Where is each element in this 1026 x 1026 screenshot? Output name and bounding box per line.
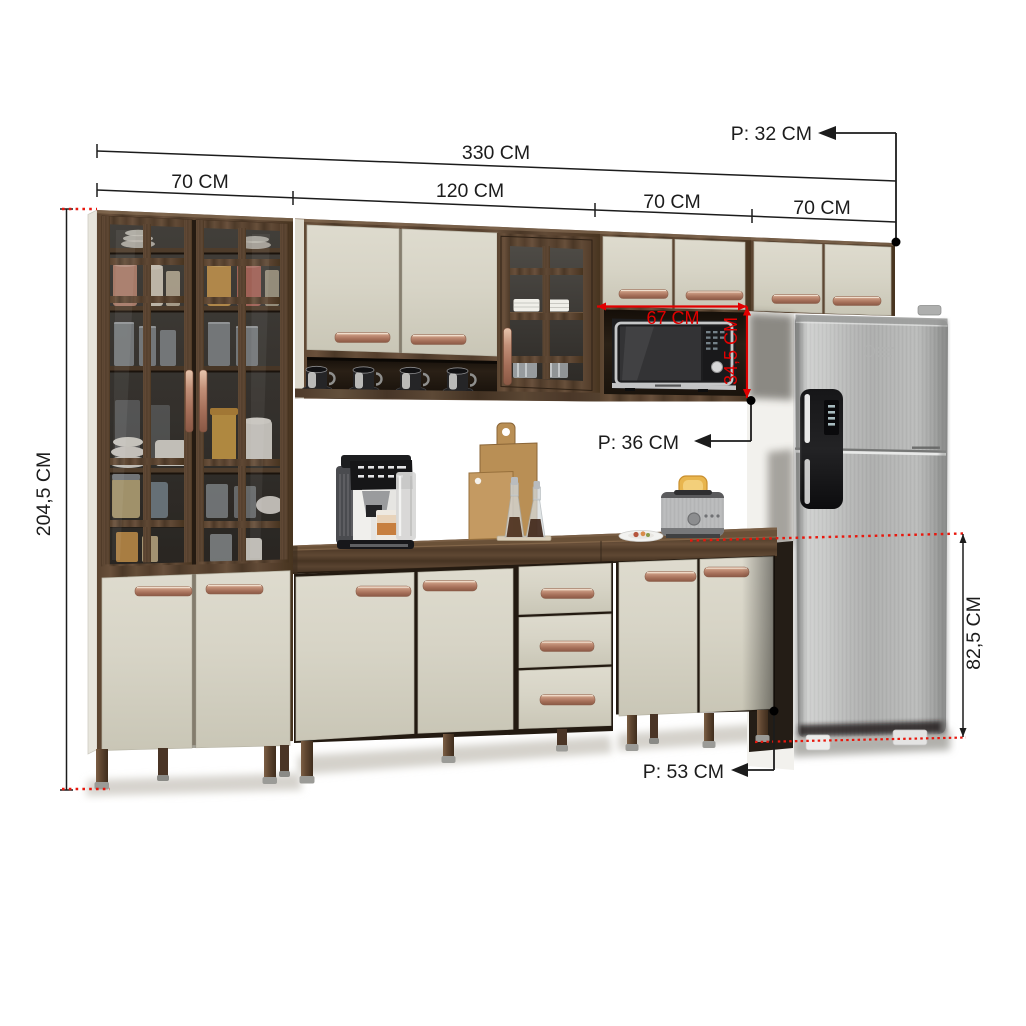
svg-text:204,5 CM: 204,5 CM bbox=[33, 452, 55, 537]
svg-text:120 CM: 120 CM bbox=[436, 180, 504, 202]
svg-text:67 CM: 67 CM bbox=[646, 308, 699, 328]
svg-text:P: 36 CM: P: 36 CM bbox=[598, 432, 679, 454]
svg-text:34,5 CM: 34,5 CM bbox=[721, 317, 741, 385]
svg-text:P: 53 CM: P: 53 CM bbox=[643, 761, 724, 783]
svg-text:82,5 CM: 82,5 CM bbox=[963, 596, 985, 670]
svg-text:70 CM: 70 CM bbox=[171, 171, 228, 193]
svg-text:70 CM: 70 CM bbox=[793, 197, 850, 219]
svg-text:P: 32 CM: P: 32 CM bbox=[731, 123, 812, 145]
svg-text:70 CM: 70 CM bbox=[643, 191, 700, 213]
svg-text:330 CM: 330 CM bbox=[462, 142, 530, 164]
